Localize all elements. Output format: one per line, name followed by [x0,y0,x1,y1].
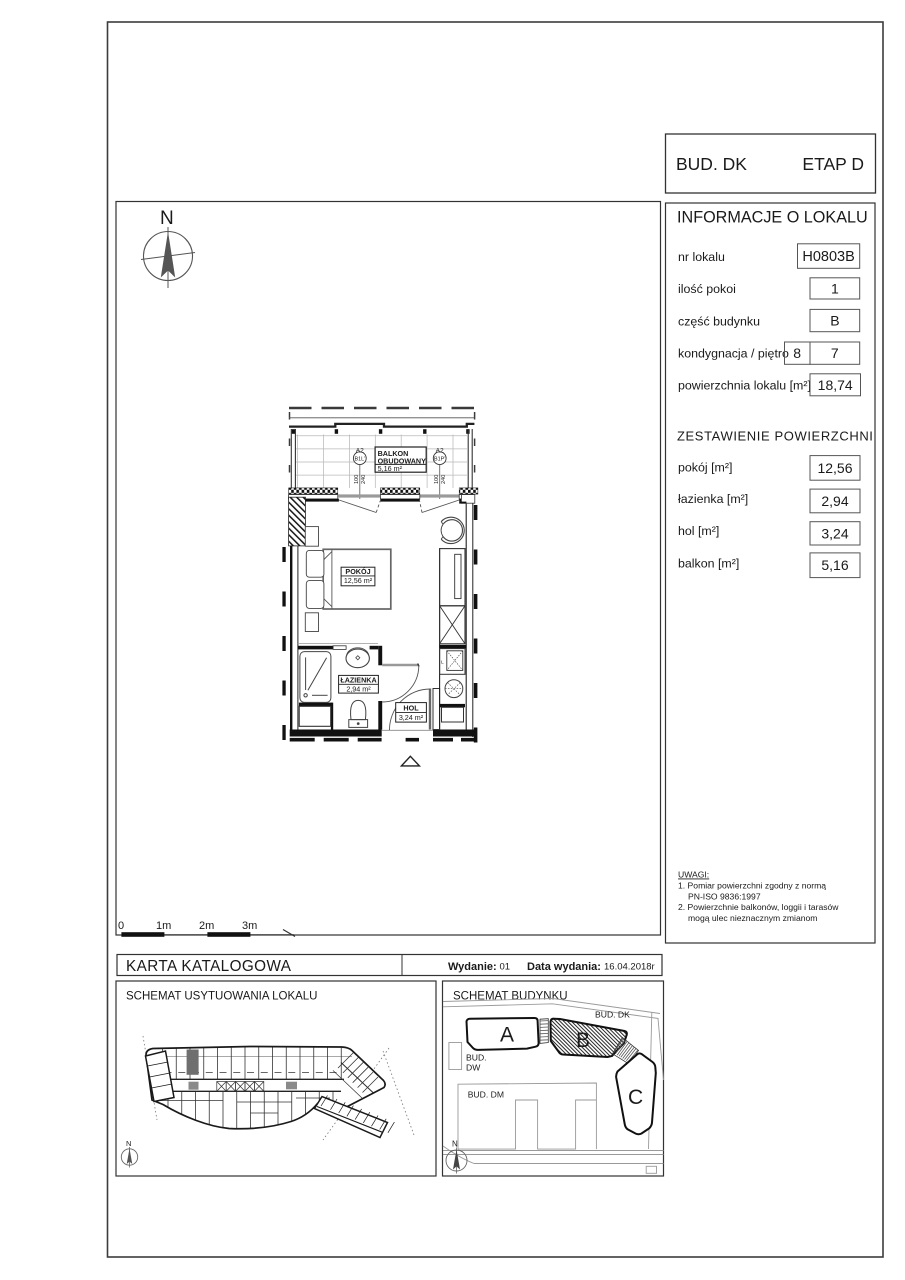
svg-text:2,94 m²: 2,94 m² [346,684,371,693]
svg-text:ZESTAWIENIE POWIERZCHNI: ZESTAWIENIE POWIERZCHNI [677,429,874,444]
svg-text:16.04.2018r: 16.04.2018r [604,962,655,973]
svg-text:C: C [628,1086,643,1109]
svg-text:powierzchnia lokalu [m²]: powierzchnia lokalu [m²] [678,379,811,393]
svg-text:N: N [452,1140,458,1149]
svg-text:A2: A2 [436,447,444,454]
svg-text:DW: DW [466,1063,481,1073]
svg-text:pokój [m²]: pokój [m²] [678,461,732,475]
svg-text:ŁAZIENKA: ŁAZIENKA [340,675,376,684]
svg-text:nr lokalu: nr lokalu [678,250,725,264]
svg-text:240: 240 [361,475,367,484]
svg-text:mogą ulec nieznacznym zmianom: mogą ulec nieznacznym zmianom [688,913,817,923]
svg-text:PN-ISO 9836:1997: PN-ISO 9836:1997 [688,891,761,901]
svg-text:POKÓJ: POKÓJ [345,567,370,576]
svg-text:BUD.: BUD. [466,1053,487,1063]
svg-text:ETAP D: ETAP D [802,154,864,174]
svg-text:B1P’: B1P’ [434,456,445,462]
svg-text:H0803B: H0803B [802,249,854,265]
svg-text:3,24: 3,24 [821,525,848,541]
svg-text:A: A [500,1024,514,1047]
svg-text:12,56 m²: 12,56 m² [344,576,373,585]
svg-text:240: 240 [441,475,447,484]
svg-text:2. Powierzchnie balkonów, logg: 2. Powierzchnie balkonów, loggii i taras… [678,902,839,912]
svg-text:100: 100 [434,475,440,484]
svg-text:3m: 3m [242,920,257,932]
svg-text:A2: A2 [356,447,364,454]
svg-text:1m: 1m [156,920,171,932]
svg-text:01: 01 [500,962,511,973]
svg-text:hol [m²]: hol [m²] [678,524,719,538]
svg-text:BUD. DM: BUD. DM [468,1090,504,1100]
svg-text:100: 100 [354,475,360,484]
svg-text:0: 0 [118,920,124,932]
svg-text:1. Pomiar powierzchni zgodny z: 1. Pomiar powierzchni zgodny z normą [678,881,826,891]
svg-text:2m: 2m [199,920,214,932]
svg-text:N: N [126,1139,131,1148]
svg-text:Wydanie:: Wydanie: [448,961,497,973]
svg-text:18,74: 18,74 [818,377,853,393]
svg-text:HOL: HOL [403,703,419,712]
svg-text:łazienka [m²]: łazienka [m²] [678,492,748,506]
svg-text:balkon [m²]: balkon [m²] [678,557,739,571]
svg-text:3,24 m²: 3,24 m² [399,713,424,722]
svg-text:część budynku: część budynku [678,315,760,329]
svg-text:INFORMACJE O LOKALU: INFORMACJE O LOKALU [677,209,868,227]
svg-text:N: N [160,208,174,229]
svg-text:2,94: 2,94 [821,493,848,509]
svg-text:BUD. DK: BUD. DK [676,154,747,174]
svg-text:B: B [830,313,839,329]
svg-text:8: 8 [793,345,801,361]
svg-text:BUD. DK: BUD. DK [595,1010,630,1020]
svg-text:UWAGI:: UWAGI: [678,870,709,880]
svg-text:kondygnacja / piętro: kondygnacja / piętro [678,347,789,361]
svg-text:1: 1 [831,280,839,296]
svg-text:12,56: 12,56 [817,460,852,476]
svg-text:SCHEMAT USYTUOWANIA LOKALU: SCHEMAT USYTUOWANIA LOKALU [126,991,318,1003]
svg-text:Data wydania:: Data wydania: [527,961,601,973]
svg-text:KARTA KATALOGOWA: KARTA KATALOGOWA [126,958,292,975]
svg-text:7: 7 [831,345,839,361]
svg-text:5,16: 5,16 [821,557,848,573]
svg-text:L: L [441,660,444,666]
svg-text:B1L’: B1L’ [355,456,366,462]
svg-text:5,16 m²: 5,16 m² [378,464,403,473]
svg-text:ilość pokoi: ilość pokoi [678,282,736,296]
